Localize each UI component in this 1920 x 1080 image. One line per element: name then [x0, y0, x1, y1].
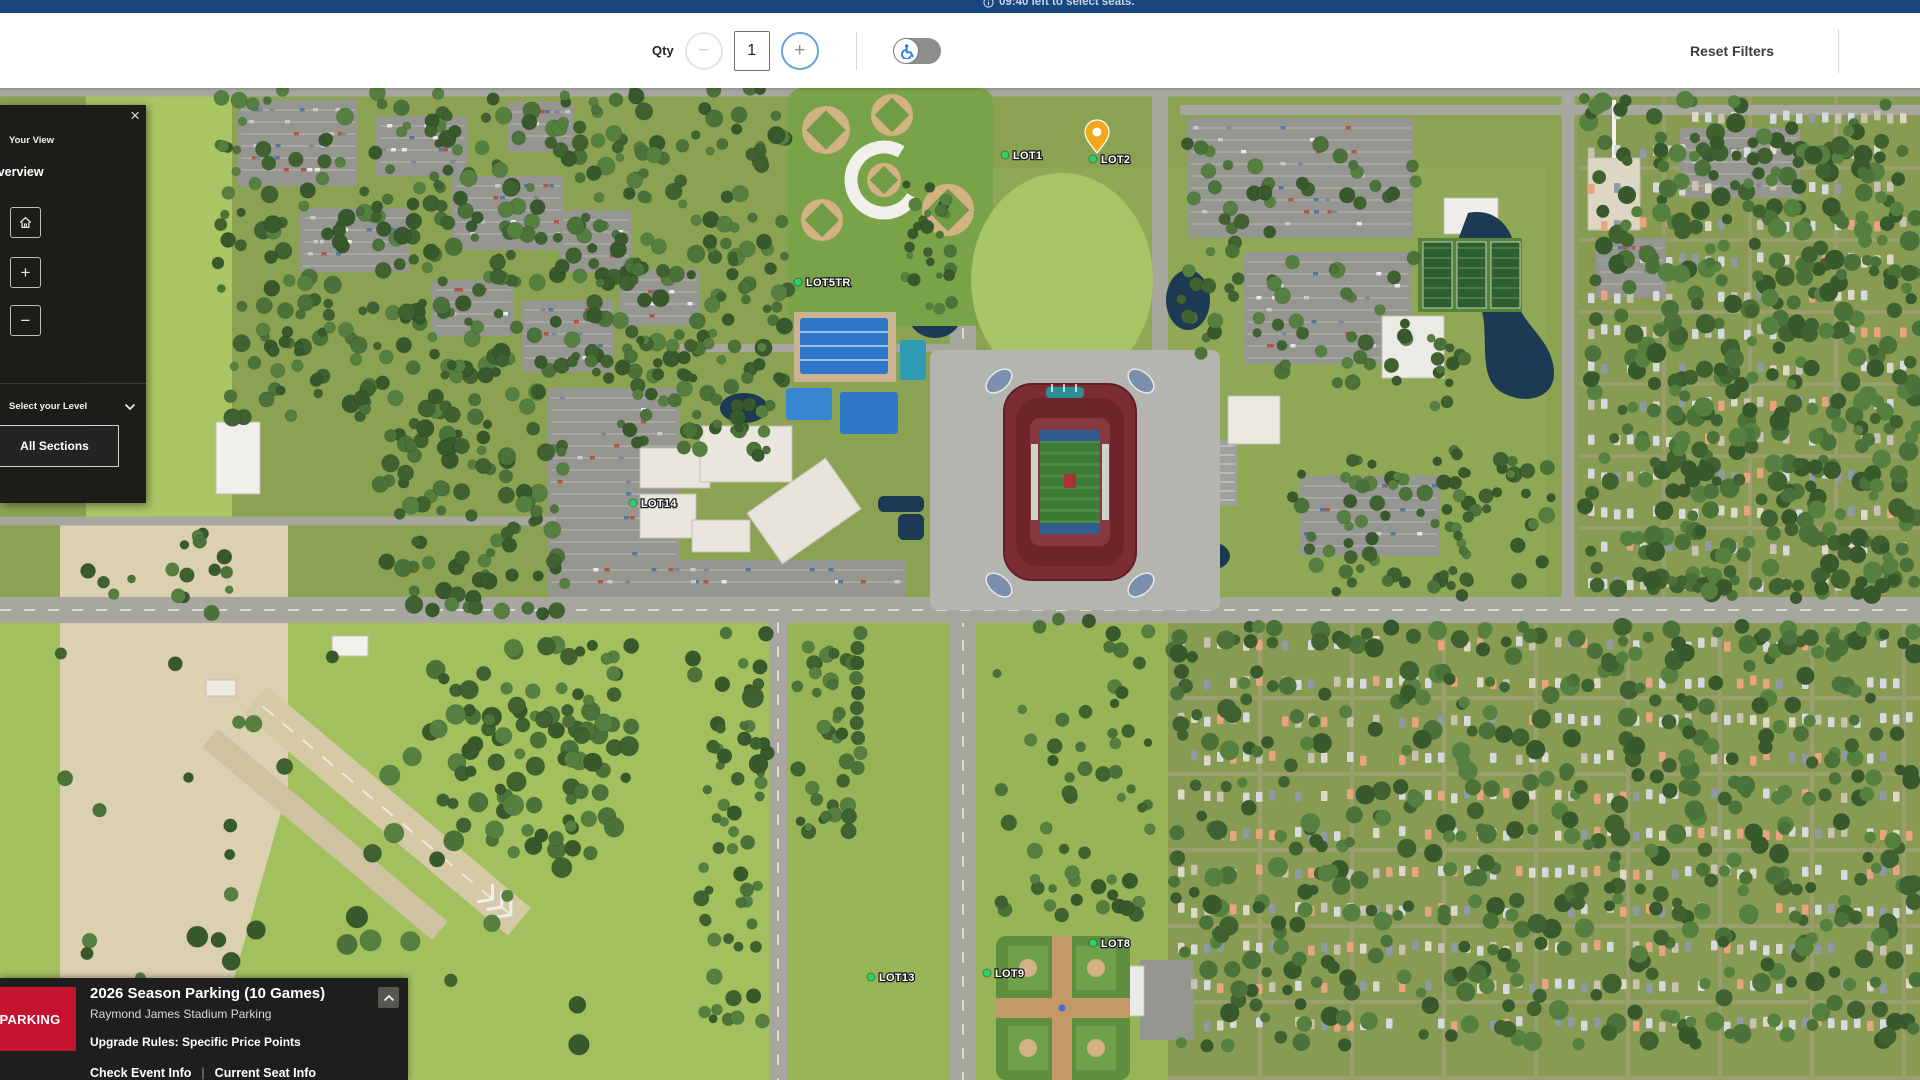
qty-increment-button[interactable]: +: [781, 32, 819, 70]
upgrade-rules: Upgrade Rules: Specific Price Points: [90, 1035, 301, 1049]
venue-map-canvas[interactable]: LOT1LOT2LOT5TRLOT14LOT13LOT9LOT8: [0, 88, 1920, 1080]
qty-label: Qty: [652, 43, 674, 58]
qty-decrement-button[interactable]: −: [685, 32, 723, 70]
toolbar-divider-right: [1838, 29, 1839, 73]
event-subtitle: Raymond James Stadium Parking: [90, 1007, 271, 1021]
parking-badge: PARKING: [0, 987, 76, 1051]
current-seat-info-link[interactable]: Current Seat Info: [215, 1066, 316, 1080]
zoom-out-button[interactable]: −: [10, 305, 41, 336]
svg-text:LOT1: LOT1: [1013, 150, 1042, 162]
close-icon[interactable]: ×: [130, 106, 140, 126]
venue-map[interactable]: LOT1LOT2LOT5TRLOT14LOT13LOT9LOT8: [0, 88, 1920, 1080]
timer-text: 09:40 left to select seats.: [999, 0, 1135, 8]
event-links: Check Event Info | Current Seat Info: [90, 1066, 316, 1080]
level-select[interactable]: Select your Level: [9, 401, 136, 412]
home-reset-view-button[interactable]: [10, 207, 41, 238]
svg-text:LOT9: LOT9: [995, 968, 1024, 980]
toolbar-divider: [856, 32, 857, 70]
svg-text:LOT13: LOT13: [879, 972, 915, 984]
svg-text:LOT8: LOT8: [1101, 938, 1130, 950]
qty-input[interactable]: [734, 31, 770, 71]
svg-text:LOT5TR: LOT5TR: [806, 277, 851, 289]
home-icon: [18, 215, 33, 230]
check-event-info-link[interactable]: Check Event Info: [90, 1066, 191, 1080]
wheelchair-icon: [898, 43, 914, 59]
link-separator: |: [201, 1066, 204, 1080]
event-panel: PARKING 2026 Season Parking (10 Games) R…: [0, 978, 408, 1080]
chevron-down-icon: [124, 403, 136, 411]
level-select-label: Select your Level: [9, 401, 87, 412]
timer: 09:40 left to select seats.: [983, 0, 1135, 8]
timer-bar: 09:40 left to select seats.: [0, 0, 1920, 13]
qty-group: Qty − +: [652, 13, 819, 88]
event-title: 2026 Season Parking (10 Games): [90, 985, 325, 1002]
tab-your-view[interactable]: Your View: [9, 135, 54, 146]
svg-text:LOT14: LOT14: [641, 498, 677, 510]
overview-title: Overview: [0, 165, 44, 179]
view-panel: × Your View Overview + − Select your Lev…: [0, 105, 146, 503]
chevron-up-icon: [383, 994, 395, 1002]
svg-text:LOT2: LOT2: [1101, 154, 1130, 166]
collapse-panel-button[interactable]: [378, 987, 399, 1008]
all-sections-button[interactable]: All Sections: [0, 425, 119, 467]
zoom-in-button[interactable]: +: [10, 257, 41, 288]
reset-filters-button[interactable]: Reset Filters: [1690, 13, 1774, 88]
toolbar: Qty − + Reset Filters: [0, 13, 1920, 88]
info-icon: [983, 0, 994, 8]
accessibility-toggle[interactable]: [893, 38, 941, 64]
panel-divider: [0, 383, 146, 384]
accessibility-toggle-knob: [894, 39, 918, 63]
